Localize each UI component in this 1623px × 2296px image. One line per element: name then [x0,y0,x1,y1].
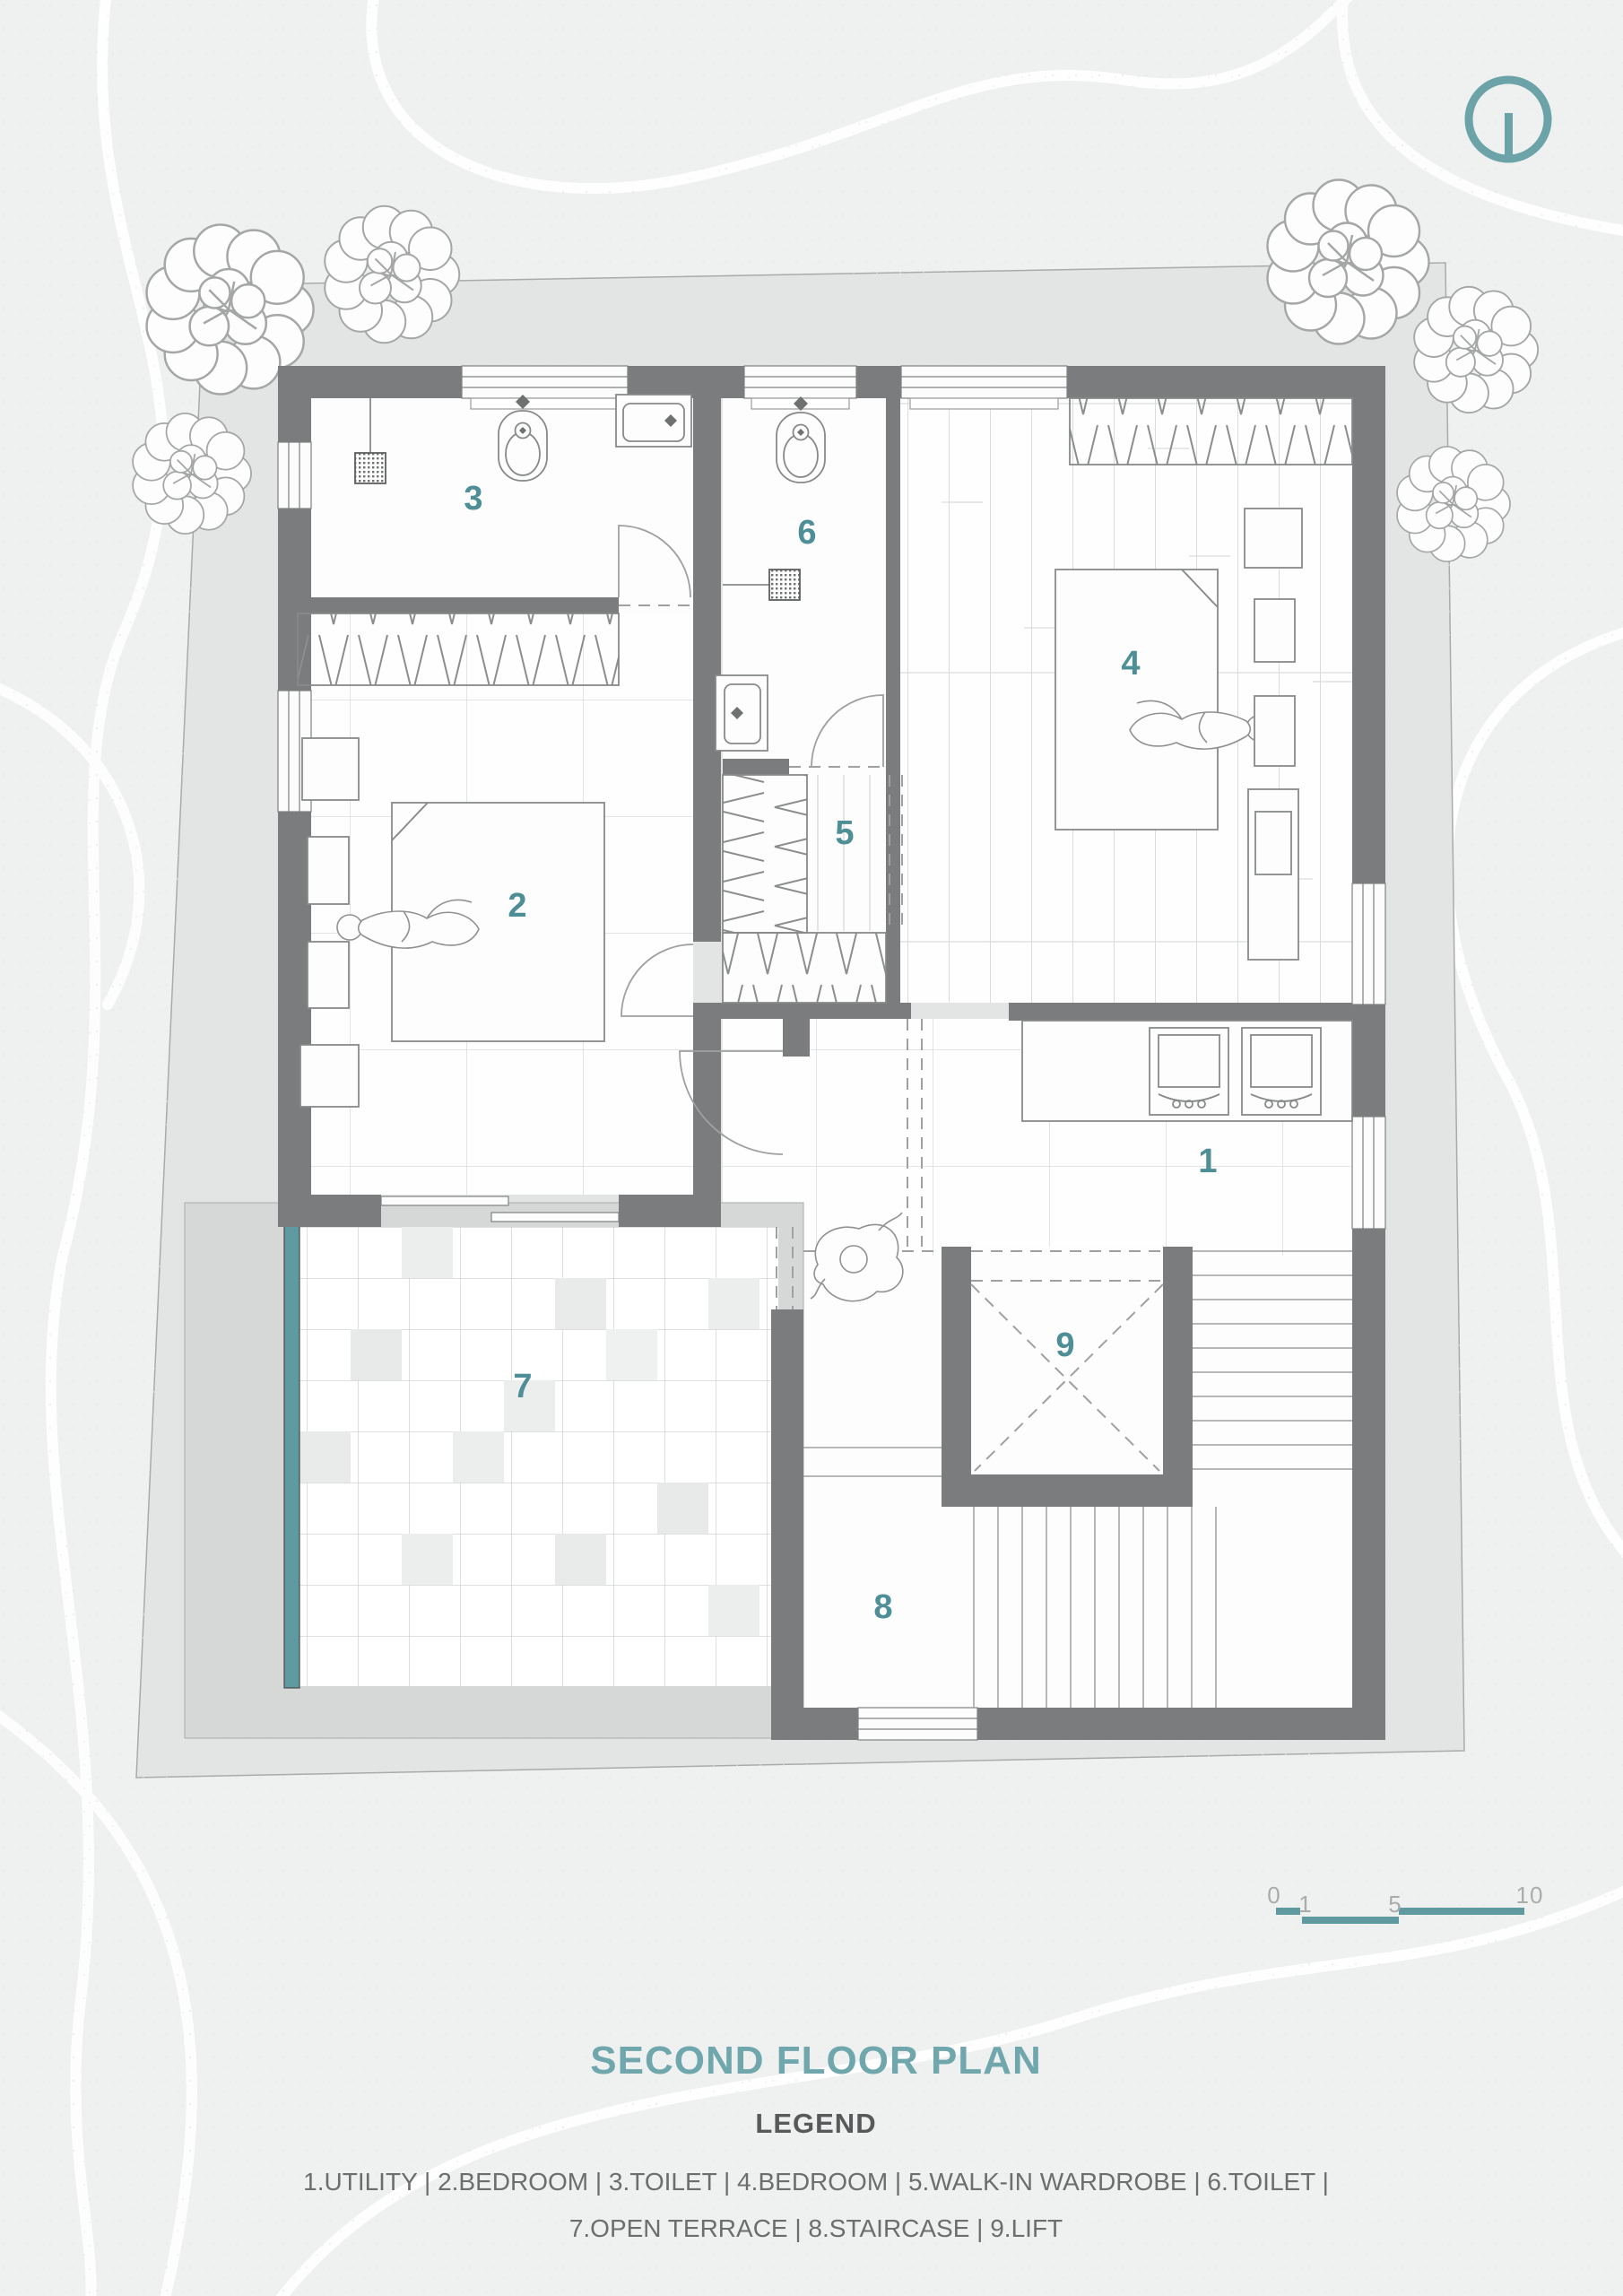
wardrobe [723,933,886,1003]
bed [1055,570,1218,830]
shower-head-icon [769,570,800,600]
terrace-planter-strip [284,1198,299,1688]
wardrobe [723,775,807,933]
room-label-bedroom-4: 4 [1121,645,1140,683]
room-label-staircase-8: 8 [873,1588,892,1626]
nightstand [1245,509,1302,568]
terrace-tiles [299,1227,778,1686]
legend-heading: LEGEND [755,2108,876,2139]
washing-machine-icon [1150,1028,1228,1115]
side-table [1254,696,1295,766]
nightstand [308,942,349,1008]
building: 1 2 3 4 5 6 7 8 9 [185,366,1385,1740]
drawing-title: SECOND FLOOR PLAN [590,2039,1041,2083]
legend-line-2: 7.OPEN TERRACE | 8.STAIRCASE | 9.LIFT [569,2214,1063,2242]
scale-label-10: 10 [1516,1882,1544,1909]
side-table [1254,599,1295,662]
room-label-toilet-6: 6 [797,514,816,552]
wardrobe [298,613,619,685]
open-terrace [185,1198,803,1738]
sliding-door-leaf [381,1196,508,1205]
nightstand [308,837,349,904]
nightstand [302,738,359,800]
floor-plan-drawing: 1 2 3 4 5 6 7 8 9 0 1 5 10 SECOND FLOOR … [0,0,1623,2296]
shower-head-icon [355,453,386,483]
wardrobe [1070,398,1352,465]
room-label-terrace-7: 7 [513,1368,532,1405]
room-label-utility: 1 [1198,1143,1217,1180]
room-label-toilet-3: 3 [464,480,482,517]
legend-line-1: 1.UTILITY | 2.BEDROOM | 3.TOILET | 4.BED… [303,2168,1329,2196]
scale-label-0: 0 [1267,1882,1280,1909]
room-label-wardrobe-5: 5 [835,814,854,852]
nightstand [300,1045,359,1107]
sliding-door-leaf [491,1213,619,1222]
floor-plan-sheet: 1 2 3 4 5 6 7 8 9 0 1 5 10 SECOND FLOOR … [0,0,1623,2296]
scale-label-1: 1 [1298,1891,1312,1918]
dryer-icon [1242,1028,1321,1115]
scale-label-5: 5 [1388,1891,1402,1918]
room-label-lift-9: 9 [1055,1326,1074,1364]
room-label-bedroom-2: 2 [508,887,526,925]
